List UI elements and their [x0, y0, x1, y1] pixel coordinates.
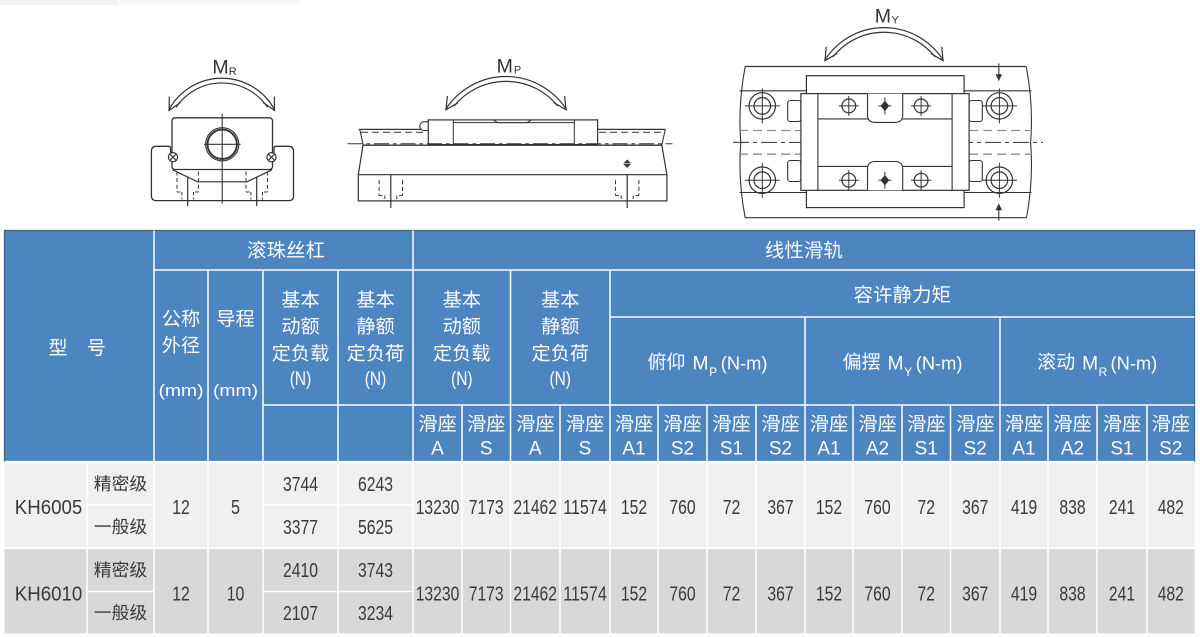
- svg-text:7173: 7173: [469, 497, 504, 519]
- svg-text:367: 367: [767, 497, 793, 519]
- svg-text:838: 838: [1059, 497, 1085, 519]
- svg-text:419: 419: [1011, 583, 1037, 605]
- svg-text:367: 367: [962, 497, 988, 519]
- svg-text:(N-m): (N-m): [916, 354, 963, 374]
- svg-text:(mm): (mm): [213, 381, 258, 400]
- svg-text:M: M: [875, 6, 891, 28]
- svg-text:3234: 3234: [358, 603, 393, 625]
- svg-text:M: M: [693, 353, 709, 374]
- svg-text:21462: 21462: [513, 583, 557, 605]
- svg-text:KH6010: KH6010: [15, 583, 83, 605]
- svg-text:241: 241: [1109, 583, 1135, 605]
- svg-text:P: P: [514, 65, 521, 77]
- svg-text:S2: S2: [769, 438, 792, 459]
- svg-text:(N-m): (N-m): [721, 354, 768, 374]
- svg-text:367: 367: [767, 583, 793, 605]
- svg-text:2410: 2410: [283, 560, 318, 582]
- svg-text:12: 12: [172, 583, 190, 605]
- svg-text:A2: A2: [866, 438, 889, 459]
- svg-text:M: M: [1082, 353, 1098, 374]
- svg-text:KH6005: KH6005: [15, 497, 83, 519]
- svg-text:S: S: [579, 438, 592, 459]
- svg-text:M: M: [497, 55, 513, 77]
- svg-text:72: 72: [917, 497, 935, 519]
- svg-text:(N): (N): [451, 369, 473, 390]
- svg-text:419: 419: [1011, 497, 1037, 519]
- svg-text:3377: 3377: [283, 517, 318, 539]
- svg-text:R: R: [1098, 365, 1107, 379]
- svg-text:482: 482: [1158, 497, 1184, 519]
- svg-text:A: A: [529, 438, 542, 459]
- svg-text:152: 152: [621, 583, 647, 605]
- svg-text:P: P: [709, 365, 717, 379]
- svg-text:13230: 13230: [416, 497, 460, 519]
- svg-text:367: 367: [962, 583, 988, 605]
- svg-text:S: S: [480, 438, 493, 459]
- svg-text:482: 482: [1158, 583, 1184, 605]
- svg-text:(N-m): (N-m): [1111, 354, 1158, 374]
- svg-text:152: 152: [816, 497, 842, 519]
- svg-text:72: 72: [723, 583, 741, 605]
- svg-text:S2: S2: [1159, 438, 1182, 459]
- svg-text:72: 72: [723, 497, 741, 519]
- svg-text:152: 152: [816, 583, 842, 605]
- svg-text:838: 838: [1059, 583, 1085, 605]
- svg-text:(N): (N): [365, 369, 387, 390]
- svg-text:7173: 7173: [469, 583, 504, 605]
- svg-text:5625: 5625: [358, 517, 393, 539]
- svg-text:S2: S2: [671, 438, 694, 459]
- svg-text:M: M: [212, 57, 228, 79]
- svg-text:(mm): (mm): [159, 381, 204, 400]
- svg-text:152: 152: [621, 497, 647, 519]
- svg-text:12: 12: [172, 497, 190, 519]
- svg-text:A: A: [431, 438, 444, 459]
- svg-text:Y: Y: [904, 365, 912, 379]
- svg-text:S1: S1: [720, 438, 743, 459]
- svg-text:Y: Y: [892, 15, 900, 27]
- svg-text:760: 760: [669, 583, 695, 605]
- svg-text:760: 760: [669, 497, 695, 519]
- svg-text:760: 760: [864, 583, 890, 605]
- svg-text:(N): (N): [549, 369, 571, 390]
- svg-text:2107: 2107: [283, 603, 318, 625]
- svg-text:3744: 3744: [283, 474, 318, 496]
- svg-text:A1: A1: [1012, 438, 1035, 459]
- svg-text:R: R: [229, 66, 237, 78]
- svg-text:S1: S1: [915, 438, 938, 459]
- svg-text:11574: 11574: [563, 497, 607, 519]
- svg-text:241: 241: [1109, 497, 1135, 519]
- svg-text:S2: S2: [964, 438, 987, 459]
- svg-text:S1: S1: [1110, 438, 1133, 459]
- svg-text:M: M: [888, 353, 904, 374]
- svg-text:3743: 3743: [358, 560, 393, 582]
- svg-text:10: 10: [227, 583, 245, 605]
- svg-text:21462: 21462: [513, 497, 557, 519]
- svg-text:(N): (N): [290, 369, 312, 390]
- svg-text:13230: 13230: [416, 583, 460, 605]
- svg-text:A1: A1: [622, 438, 645, 459]
- svg-text:5: 5: [231, 497, 240, 519]
- svg-text:72: 72: [917, 583, 935, 605]
- svg-text:6243: 6243: [358, 474, 393, 496]
- svg-text:A2: A2: [1061, 438, 1084, 459]
- svg-text:A1: A1: [817, 438, 840, 459]
- svg-text:11574: 11574: [563, 583, 607, 605]
- svg-text:760: 760: [864, 497, 890, 519]
